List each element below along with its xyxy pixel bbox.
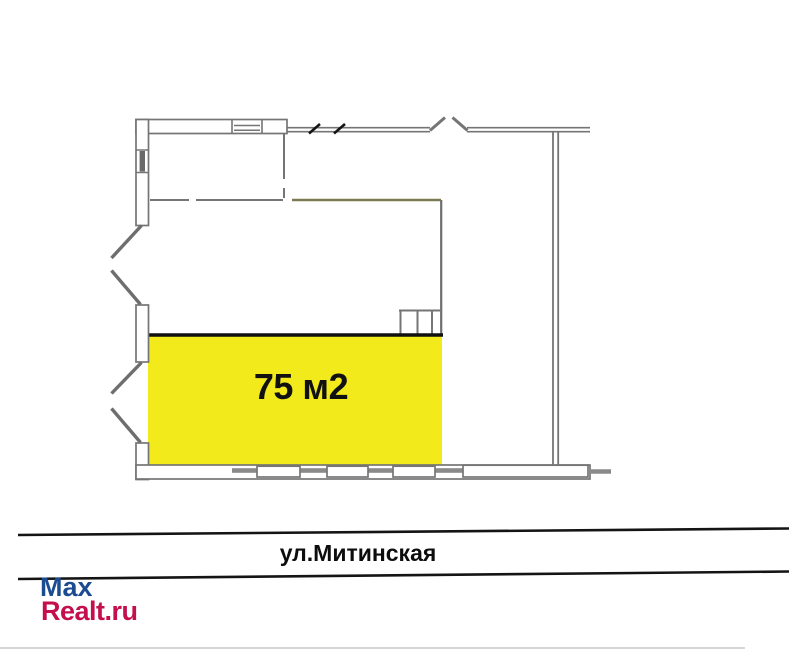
door-leaf — [430, 118, 445, 131]
floor-plan-image: 75 м2 ул.Митинская Max Realt.ru — [0, 0, 800, 649]
middle-room-walls — [292, 200, 442, 336]
area-label: 75 м2 — [148, 332, 442, 458]
window — [257, 466, 300, 477]
bottom-wall-windows — [136, 465, 611, 479]
street-line-top — [18, 529, 789, 536]
window — [463, 465, 588, 477]
left-bay-walls — [112, 226, 149, 480]
door-leaf — [453, 118, 468, 131]
right-wall — [553, 131, 558, 465]
watermark-realt-ru: Realt.ru — [41, 598, 138, 625]
street-label: ул.Митинская — [248, 540, 468, 566]
window — [393, 466, 435, 477]
street-line-bottom — [18, 572, 789, 580]
top-room-walls — [136, 120, 287, 226]
window — [327, 466, 368, 477]
top-wall — [287, 118, 590, 134]
